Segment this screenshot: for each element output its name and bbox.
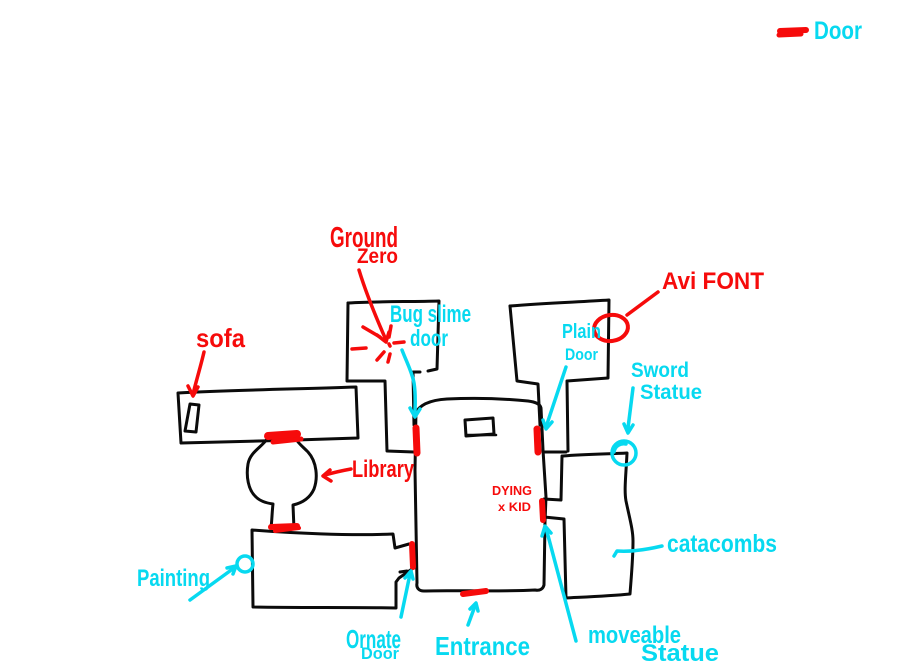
svg-text:Bug slime: Bug slime <box>390 301 471 328</box>
svg-text:Plain: Plain <box>562 321 601 343</box>
svg-text:Library: Library <box>352 456 414 483</box>
svg-text:door: door <box>410 325 448 351</box>
svg-text:Statue: Statue <box>641 640 719 666</box>
svg-text:Door: Door <box>814 17 862 45</box>
svg-text:Avi FONT: Avi FONT <box>662 268 764 295</box>
svg-text:Statue: Statue <box>640 381 702 404</box>
svg-text:catacombs: catacombs <box>667 530 777 558</box>
svg-text:Door: Door <box>361 644 399 663</box>
svg-text:sofa: sofa <box>196 323 245 353</box>
svg-text:Door: Door <box>565 345 598 364</box>
svg-text:Sword: Sword <box>631 359 689 382</box>
svg-text:Entrance: Entrance <box>435 631 530 661</box>
svg-text:Painting: Painting <box>137 565 210 592</box>
svg-text:x KID: x KID <box>498 500 531 514</box>
svg-text:DYING: DYING <box>492 483 532 498</box>
svg-text:Zero: Zero <box>357 245 398 268</box>
